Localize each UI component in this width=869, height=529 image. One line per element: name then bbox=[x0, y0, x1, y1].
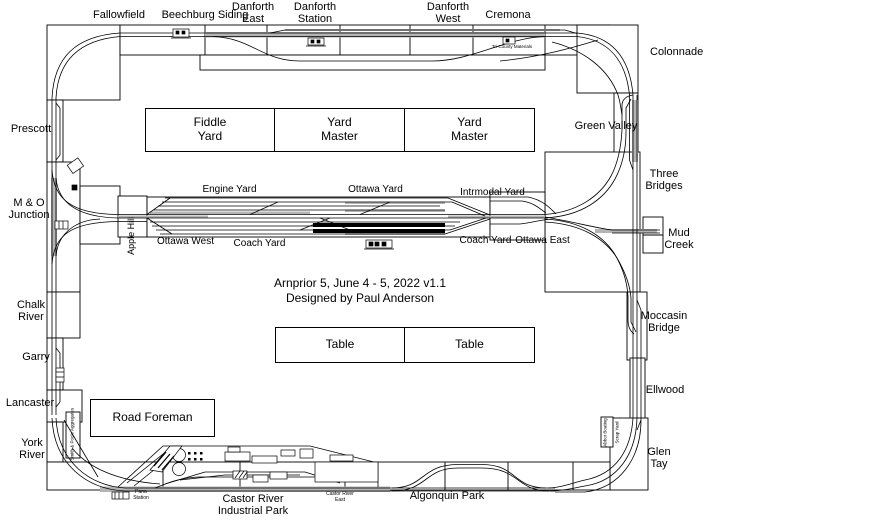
industry-label-aggregates: Smith & Poole Aggregates bbox=[71, 410, 76, 460]
station-label-glen-tay: Glen Tay bbox=[644, 447, 674, 471]
yard-label-ottawa-west: Ottawa West bbox=[148, 237, 223, 248]
station-icon-danforth-east bbox=[503, 37, 515, 44]
station-icon-fallowfield bbox=[171, 29, 191, 38]
box-table-2-label: Table bbox=[455, 338, 484, 352]
station-label-algonquin-park: Algonquin Park bbox=[402, 491, 492, 503]
station-label-moccasin-bridge: Moccasin Bridge bbox=[634, 311, 694, 335]
station-label-cremona: Cremona bbox=[468, 10, 548, 22]
crate-dots bbox=[188, 452, 203, 461]
station-label-ellwood: Ellwood bbox=[640, 385, 690, 397]
plan-title-line2: Designed by Paul Anderson bbox=[240, 291, 480, 306]
station-label-york-river: York River bbox=[12, 438, 52, 462]
industry-building bbox=[270, 472, 287, 479]
box-yard-master-2-label: Yard Master bbox=[444, 116, 496, 144]
box-yard-master-1: Yard Master bbox=[274, 108, 405, 152]
station-icon-pana bbox=[112, 492, 129, 499]
station-label-lancaster: Lancaster bbox=[0, 398, 60, 410]
station-label-colonnade: Colonnade bbox=[650, 47, 720, 59]
station-label-mud-creek: Mud Creek bbox=[655, 228, 703, 252]
track-diagram-svg bbox=[0, 0, 869, 529]
yard-label-ottawa-east: Ottawa East bbox=[505, 236, 580, 247]
plan-title: Arnprior 5, June 4 - 5, 2022 v1.1 Design… bbox=[240, 276, 480, 306]
industry-building bbox=[253, 475, 268, 482]
yard-label-apple-hill: Apple Hill bbox=[127, 211, 137, 261]
industry-building bbox=[281, 450, 295, 456]
industry-label-boating: Abbot Boating bbox=[604, 408, 609, 456]
industry-building bbox=[330, 455, 353, 461]
box-yard-master-1-label: Yard Master bbox=[314, 116, 366, 144]
station-label-mo-junction: M & O Junction bbox=[0, 198, 58, 222]
station-icon-garry bbox=[56, 368, 64, 382]
industry-building bbox=[225, 452, 250, 461]
station-icon-ottawa-yard bbox=[364, 240, 394, 249]
box-table-1: Table bbox=[275, 327, 405, 363]
industry-label-materials: Tri-County Materials bbox=[490, 45, 534, 50]
station-label-castor-river-industrial-park: Castor River Industrial Park bbox=[211, 494, 295, 518]
station-label-danforth-east: Danforth East bbox=[223, 2, 283, 26]
industry-label-scrap-yard: Scrap Yard bbox=[616, 408, 621, 456]
industry-building bbox=[315, 462, 378, 482]
industry-building bbox=[252, 456, 277, 463]
station-label-fallowfield: Fallowfield bbox=[79, 10, 159, 22]
yard-label-engine-yard: Engine Yard bbox=[192, 185, 267, 196]
box-road-foreman: Road Foreman bbox=[90, 399, 215, 437]
box-table-1-label: Table bbox=[326, 338, 355, 352]
crossing-icon bbox=[233, 471, 247, 479]
yard-label-coach-yard-west: Coach Yard bbox=[222, 239, 297, 250]
industry-building bbox=[228, 447, 240, 452]
box-yard-master-2: Yard Master bbox=[404, 108, 535, 152]
station-icon-danforth bbox=[306, 38, 326, 46]
signal-box-icon bbox=[72, 185, 77, 190]
box-fiddle-yard-label: Fiddle Yard bbox=[184, 116, 236, 144]
station-icon-mo-junction bbox=[55, 221, 68, 229]
box-fiddle-yard: Fiddle Yard bbox=[145, 108, 275, 152]
station-label-pana-station: Pana Station bbox=[128, 490, 154, 501]
station-label-castor-river-east: Castor River East bbox=[325, 492, 355, 503]
station-label-three-bridges: Three Bridges bbox=[638, 169, 690, 193]
station-label-danforth-station: Danforth Station bbox=[285, 2, 345, 26]
yard-label-intermodal-yard: Intrmodal Yard bbox=[450, 188, 535, 199]
station-label-prescott: Prescott bbox=[0, 124, 62, 136]
industry-building bbox=[300, 449, 313, 458]
plan-title-line1: Arnprior 5, June 4 - 5, 2022 v1.1 bbox=[240, 276, 480, 291]
station-label-green-valley: Green Valley bbox=[574, 121, 638, 133]
box-road-foreman-label: Road Foreman bbox=[112, 411, 192, 425]
station-label-garry: Garry bbox=[5, 352, 67, 364]
station-label-chalk-river: Chalk River bbox=[10, 300, 52, 324]
box-table-2: Table bbox=[404, 327, 535, 363]
yard-label-ottawa-yard: Ottawa Yard bbox=[338, 185, 413, 196]
track-plan: Fallowfield Beechburg Siding Danforth Ea… bbox=[0, 0, 869, 529]
